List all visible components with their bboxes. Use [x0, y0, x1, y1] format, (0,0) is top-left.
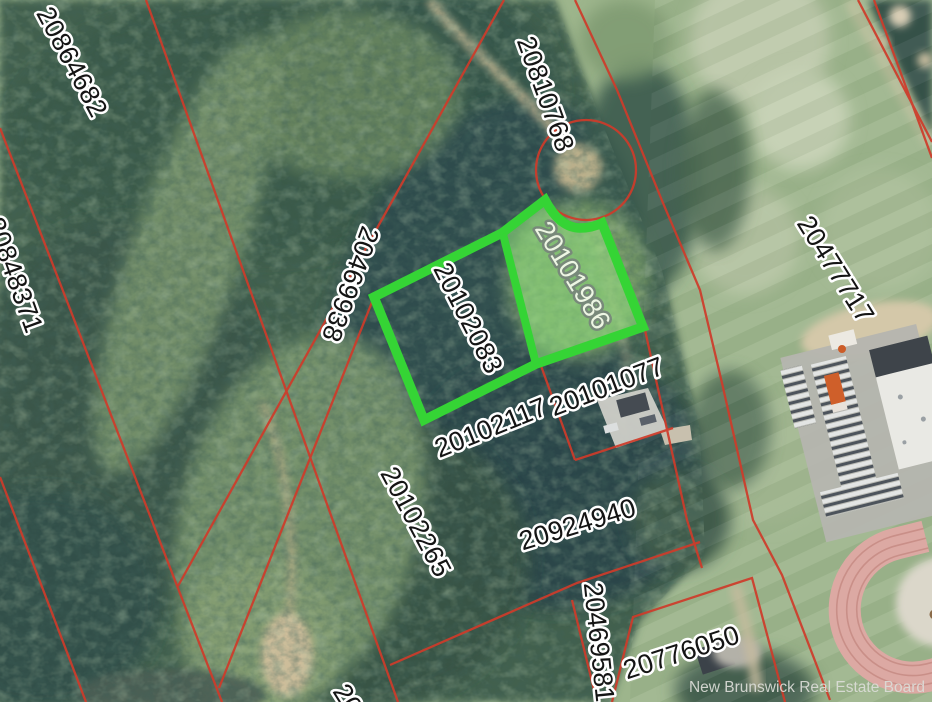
- aerial-terrain-layer: [0, 0, 932, 702]
- map-canvas: 20864682 20848371 20810768 20469938 2047…: [0, 0, 932, 702]
- watermark: New Brunswick Real Estate Board: [689, 679, 925, 696]
- parcel-map: 20864682 20848371 20810768 20469938 2047…: [0, 0, 932, 702]
- orange-equipment: [838, 345, 846, 353]
